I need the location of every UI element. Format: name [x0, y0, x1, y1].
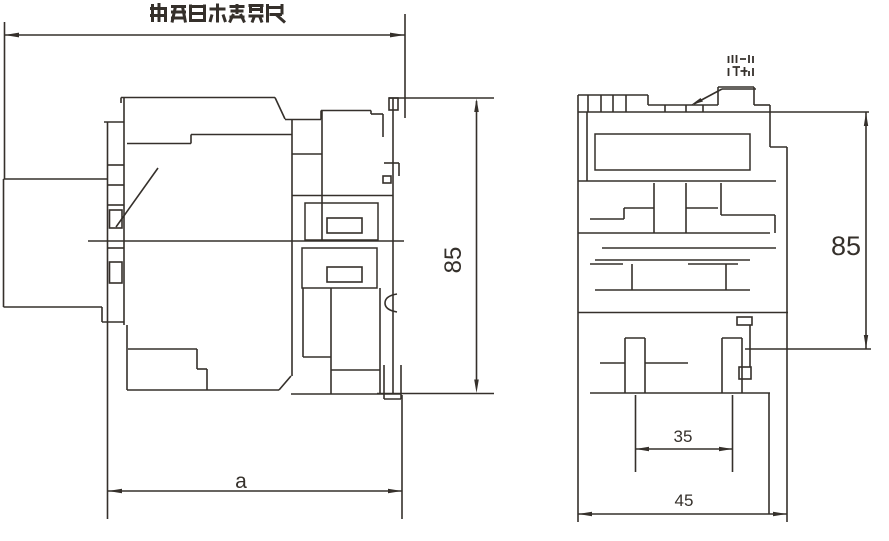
svg-text:85: 85: [831, 231, 861, 261]
svg-text:85: 85: [440, 247, 467, 274]
svg-text:35: 35: [674, 427, 693, 446]
svg-text:45: 45: [675, 491, 694, 510]
svg-text:a: a: [235, 470, 247, 493]
